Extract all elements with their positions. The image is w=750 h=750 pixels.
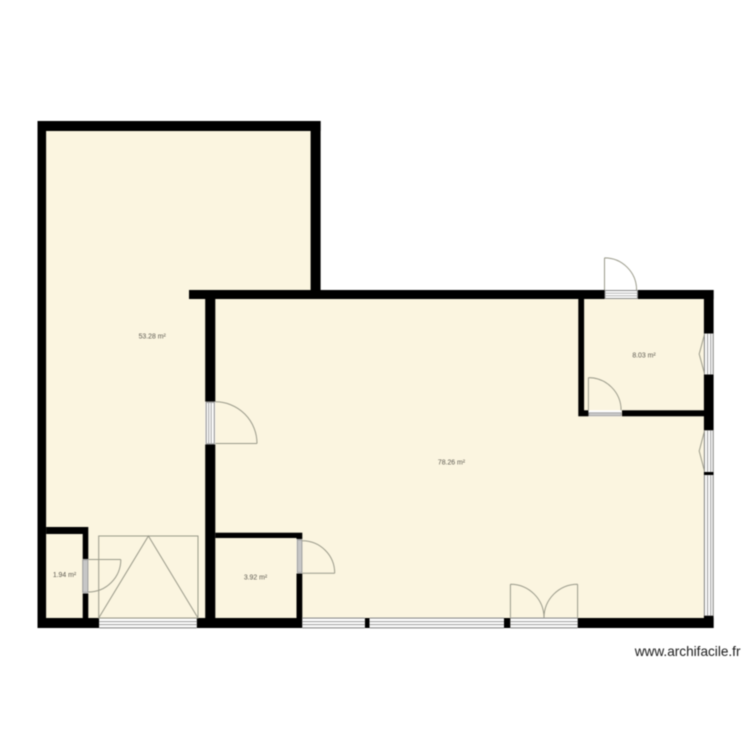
svg-text:8.03 m²: 8.03 m² <box>632 352 656 359</box>
svg-text:1.94 m²: 1.94 m² <box>53 572 77 579</box>
svg-text:53.28 m²: 53.28 m² <box>139 333 167 340</box>
svg-text:www.archifacile.fr: www.archifacile.fr <box>634 644 741 659</box>
svg-text:3.92 m²: 3.92 m² <box>244 575 268 582</box>
svg-text:78.26 m²: 78.26 m² <box>438 460 466 467</box>
